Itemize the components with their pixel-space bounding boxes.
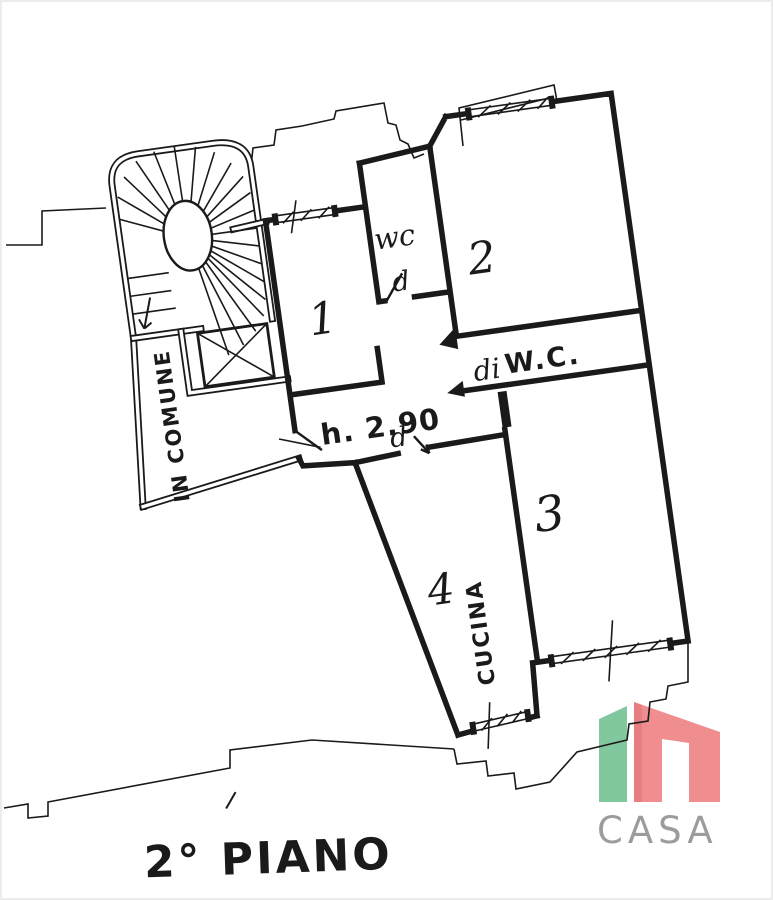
ceiling-height-label: h. 2.90 bbox=[318, 402, 442, 452]
corridor-wc-prefix: di bbox=[471, 352, 502, 388]
room2-label: 2 bbox=[463, 231, 499, 286]
room3-label: 3 bbox=[530, 484, 568, 544]
room3-door-leaf bbox=[498, 391, 512, 428]
window-tick bbox=[601, 620, 621, 681]
room4-label: 4 bbox=[423, 563, 457, 615]
floorplan-page: CASA bbox=[0, 0, 773, 900]
outline-bottom-left bbox=[4, 740, 454, 818]
window-kitchen-bottom bbox=[467, 697, 535, 751]
floorplan-drawing: CASA bbox=[2, 2, 771, 898]
window-room1-top bbox=[270, 195, 340, 236]
corridor-wc-door-mark-bottom bbox=[446, 381, 465, 399]
floor-label: 2° PIANO bbox=[143, 829, 393, 889]
logo-green-bar bbox=[599, 706, 627, 802]
kitchen-label: CUCINA bbox=[462, 579, 501, 687]
common-area-walls bbox=[94, 138, 302, 507]
wc-door-letter: d bbox=[390, 265, 411, 298]
elevator bbox=[197, 324, 274, 387]
logo-pink-house bbox=[634, 702, 720, 802]
logo-pink-shade bbox=[634, 702, 642, 802]
floor-label-accent-mark bbox=[226, 792, 237, 808]
logo-text: CASA bbox=[597, 809, 718, 852]
window-tick bbox=[482, 702, 496, 749]
stair-straight-treads bbox=[127, 272, 176, 314]
apartment-plan: 1 2 3 4 wc d d di W.C. h. 2.90 IN COMUNE… bbox=[94, 85, 699, 791]
window-room3-bottom bbox=[544, 612, 677, 689]
wc-room-label: wc bbox=[372, 217, 417, 256]
corridor-wc-door-mark-top bbox=[437, 327, 458, 351]
survey-outlines bbox=[4, 85, 688, 818]
floor-caption: 2° PIANO bbox=[142, 787, 394, 889]
room1-label: 1 bbox=[305, 292, 340, 346]
entrance-door bbox=[278, 427, 322, 455]
casa-logo: CASA bbox=[597, 702, 720, 852]
outline-top-left bbox=[6, 208, 106, 245]
